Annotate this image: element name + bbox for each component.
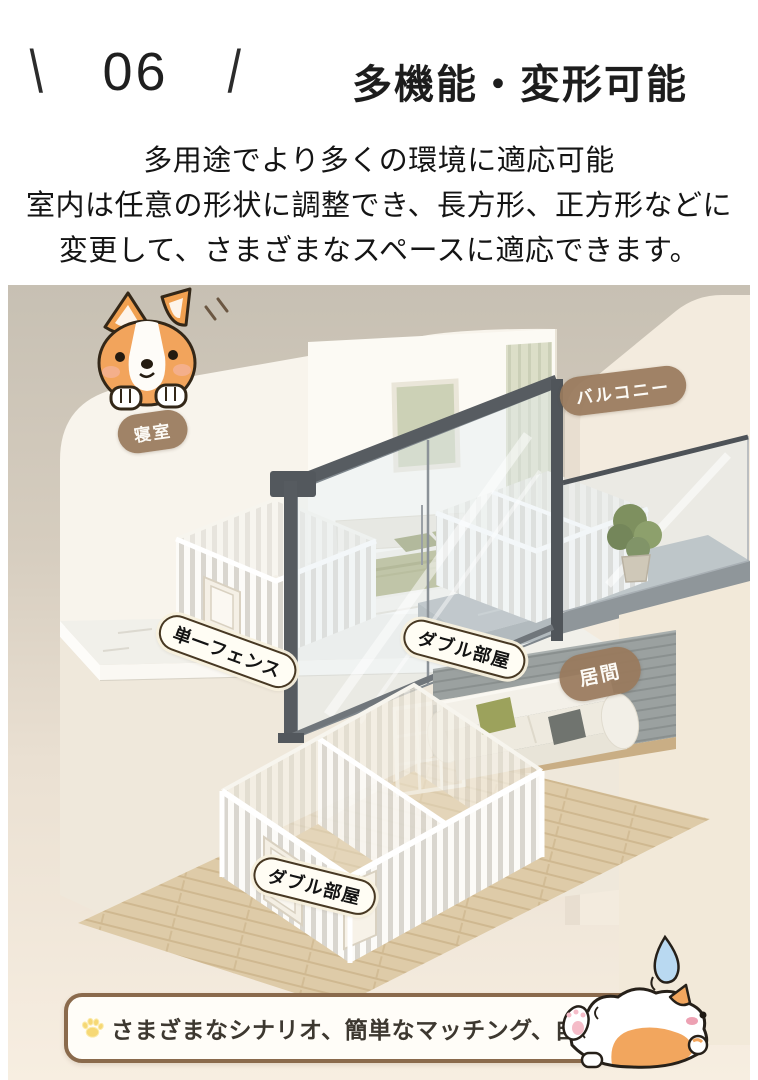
product-infographic-page: \ 06 / 多機能・変形可能 多用途でより多くの環境に適応可能 室内は任意の形… <box>0 0 758 1080</box>
description: 多用途でより多くの環境に適応可能 室内は任意の形状に調整でき、長方形、正方形など… <box>0 139 758 274</box>
page-title: 多機能・変形可能 <box>352 52 688 110</box>
corgi-body <box>559 985 707 1067</box>
paw-icon <box>80 1005 105 1051</box>
section-number-block: \ 06 / <box>28 34 243 110</box>
corgi-lying-illustration <box>552 927 730 1077</box>
room-illustration-scene: 寝室 バルコニー 単一フェンス ダブル部屋 居間 ダブル部屋 さまざまなシナリオ… <box>8 285 750 1080</box>
section-number: 06 <box>102 34 168 110</box>
description-line-2: 室内は任意の形状に調整でき、長方形、正方形などに <box>26 190 732 222</box>
description-line-1: 多用途でより多くの環境に適応可能 <box>143 145 614 177</box>
slash-decoration: / <box>228 34 241 110</box>
backslash-decoration: \ <box>30 34 43 110</box>
description-line-3: 変更して、さまざまなスペースに適応できます。 <box>59 235 699 267</box>
sweat-drop-icon <box>651 937 678 990</box>
